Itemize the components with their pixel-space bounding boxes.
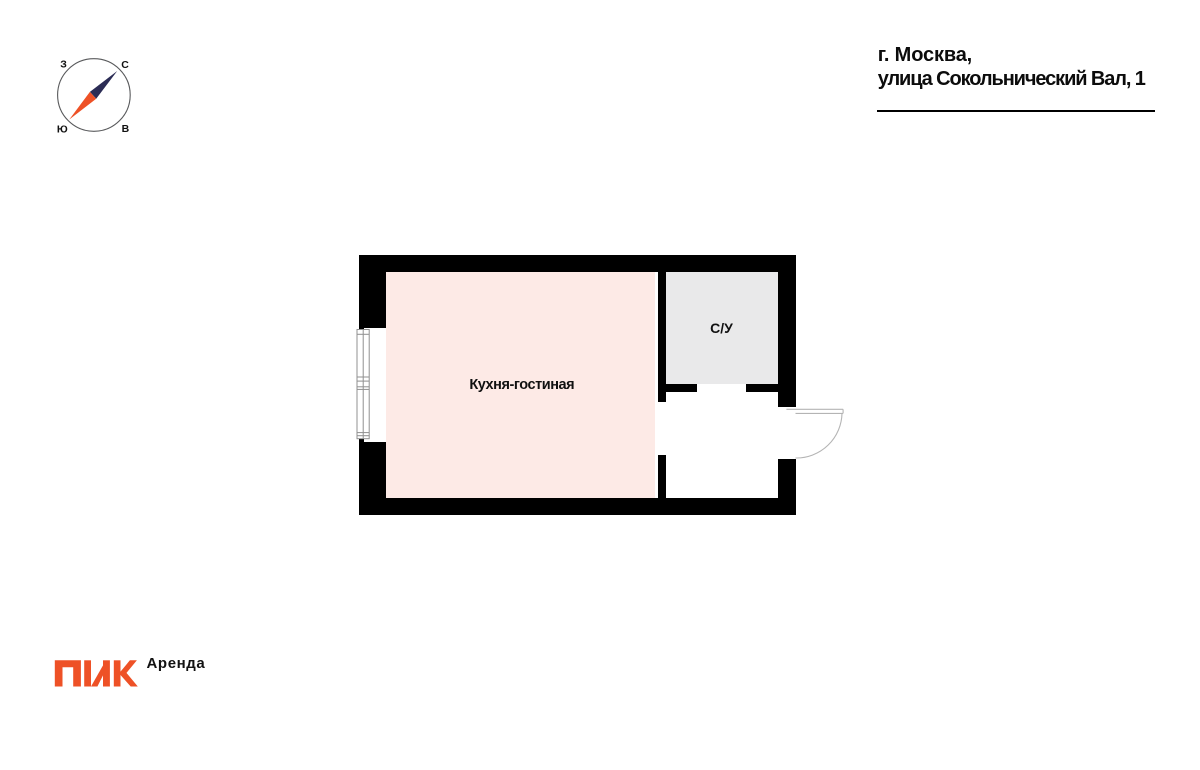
svg-text:Ю: Ю bbox=[57, 123, 68, 135]
svg-text:В: В bbox=[122, 123, 130, 135]
svg-text:С: С bbox=[121, 59, 129, 71]
svg-text:З: З bbox=[60, 59, 67, 71]
